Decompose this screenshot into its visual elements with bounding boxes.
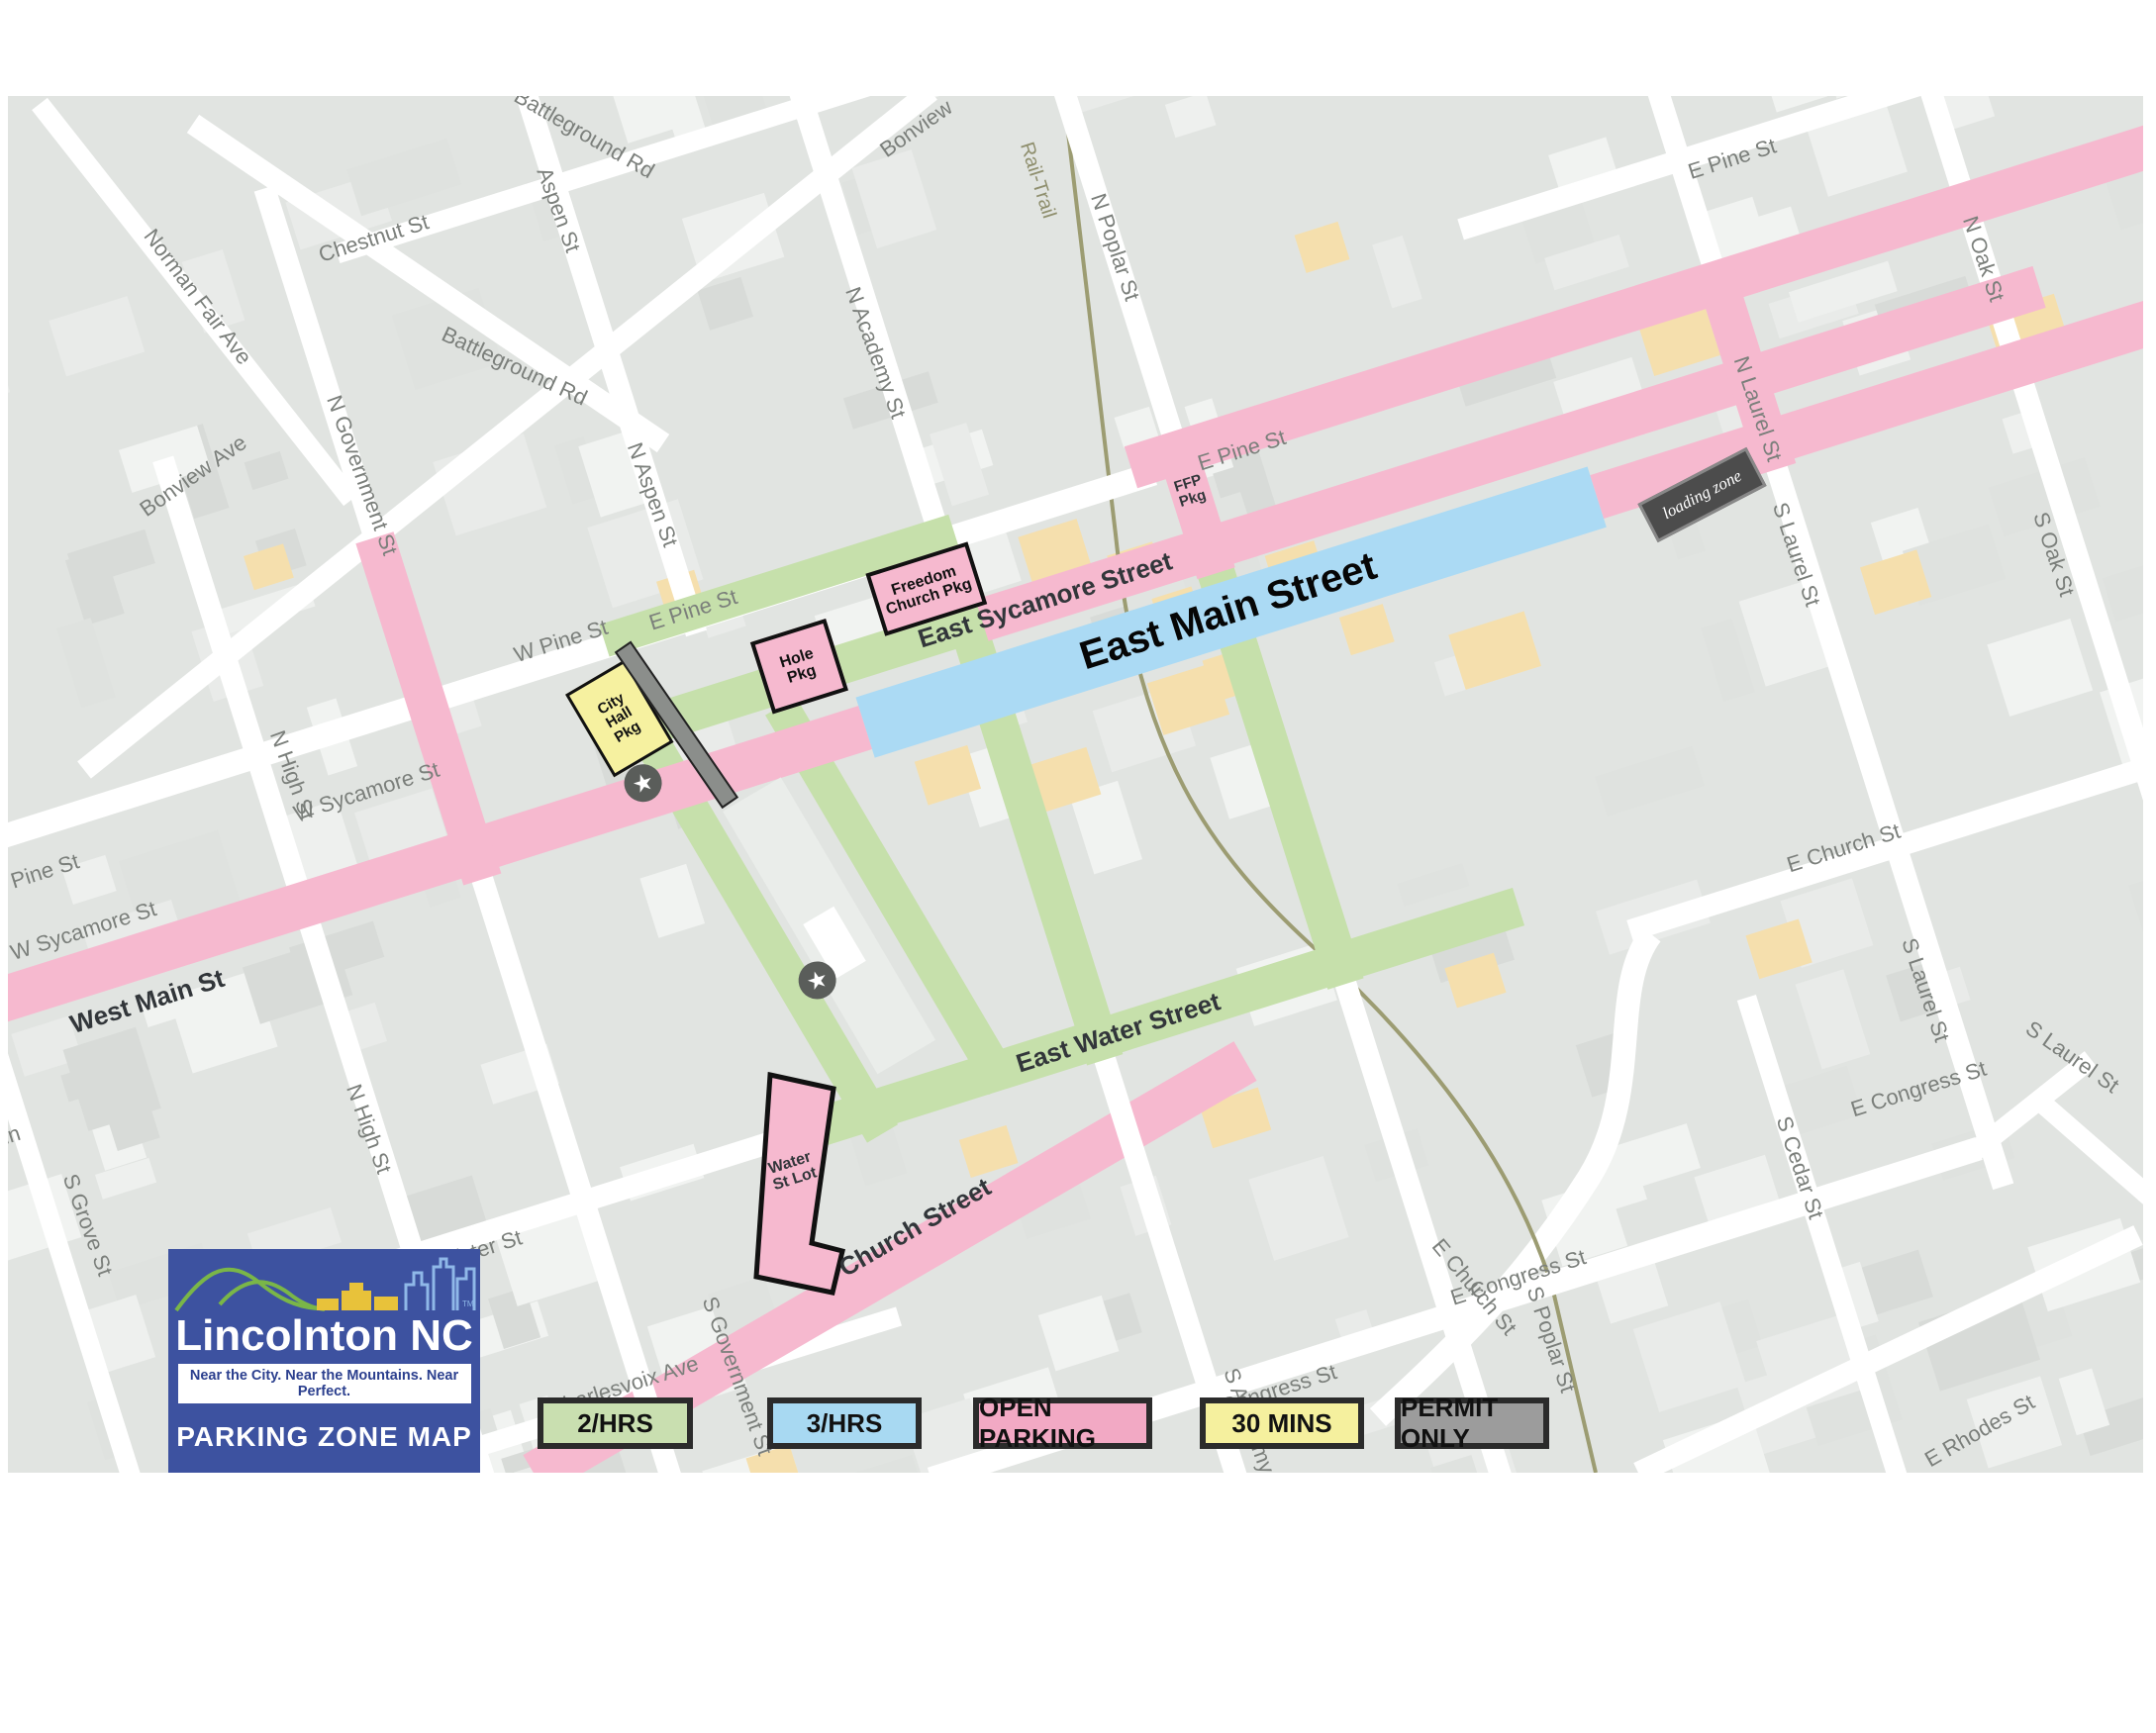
street-label: N Government St xyxy=(323,392,402,558)
street-label: Bonview xyxy=(876,96,956,161)
street-label: S Laurel St xyxy=(2021,1016,2122,1097)
street-label: E Rhodes St xyxy=(1921,1391,2039,1472)
street-label: S Cedar St xyxy=(1772,1113,1827,1221)
logo-tagline: Near the City. Near the Mountains. Near … xyxy=(178,1364,471,1403)
street-label: S Laurel St xyxy=(1769,500,1824,610)
logo-tm: TM xyxy=(462,1300,474,1308)
legend-label: 3/HRS xyxy=(807,1408,883,1439)
street-label: N Poplar St xyxy=(1087,191,1144,304)
street-label: Norman Fair Ave xyxy=(140,225,256,368)
street-label: Battleground Rd xyxy=(439,323,591,410)
legend-label: PERMIT ONLY xyxy=(1401,1393,1543,1454)
street-label: N Academy St xyxy=(841,284,910,422)
street-label: E Congress St xyxy=(1848,1057,1989,1121)
street-label: Rail-Trail xyxy=(1016,140,1059,221)
legend-item-30-mins: 30 MINS xyxy=(1200,1397,1364,1449)
street-label: E Pine St xyxy=(1195,426,1288,475)
loading-zone: loading zone xyxy=(1637,447,1766,542)
street-label: FFP Pkg xyxy=(1172,472,1209,511)
street-label: N High St xyxy=(343,1081,396,1176)
street-label: W Pine St xyxy=(511,616,610,666)
street-label: N Oak St xyxy=(1959,213,2009,304)
street-label: Bonview Ave xyxy=(136,431,250,521)
street-label: N Laurel St xyxy=(1730,353,1787,464)
legend-item-3-hrs: 3/HRS xyxy=(767,1397,922,1449)
street-label: West Main St xyxy=(67,965,228,1039)
legend-label: 2/HRS xyxy=(577,1408,653,1439)
street-label: W Sycamore St xyxy=(8,897,159,964)
street-label: S Grove St xyxy=(59,1171,118,1279)
street-label: Battleground Rd xyxy=(511,96,658,182)
street-label: S Poplar St xyxy=(1522,1284,1579,1396)
street-label: East Water Street xyxy=(1013,988,1224,1077)
legend-item-permit-only: PERMIT ONLY xyxy=(1395,1397,1549,1449)
street-label: W Sycamore St xyxy=(291,758,442,825)
street-label: S Oak St xyxy=(2029,509,2079,599)
street-label: Pine St xyxy=(8,849,82,892)
street-label: W Main xyxy=(8,1121,23,1165)
legend-label: OPEN PARKING xyxy=(979,1393,1146,1454)
hole-pkg: Hole Pkg xyxy=(750,619,848,715)
street-label: S Government St xyxy=(698,1294,776,1458)
street-label: E Pine St xyxy=(1686,134,1779,183)
legend-item-open-parking: OPEN PARKING xyxy=(973,1397,1152,1449)
legend-item-2-hrs: 2/HRS xyxy=(538,1397,693,1449)
city-hall-pkg: City Hall Pkg xyxy=(565,659,674,777)
street-label: Chestnut St xyxy=(316,210,432,266)
street-label: Aspen St xyxy=(533,164,584,255)
street-label: E Church St xyxy=(1784,819,1903,877)
street-label: E Pine St xyxy=(646,585,739,634)
street-label: Water St Lot xyxy=(766,1149,819,1195)
street-label: N Aspen St xyxy=(624,439,682,549)
map-title: PARKING ZONE MAP xyxy=(176,1421,472,1453)
legend-label: 30 MINS xyxy=(1231,1408,1331,1439)
street-label: Church Street xyxy=(834,1174,996,1283)
street-label: S Laurel St xyxy=(1898,935,1953,1045)
logo-title: Lincolnton NC xyxy=(175,1314,473,1358)
city-logo: TM Lincolnton NC Near the City. Near the… xyxy=(168,1249,480,1473)
